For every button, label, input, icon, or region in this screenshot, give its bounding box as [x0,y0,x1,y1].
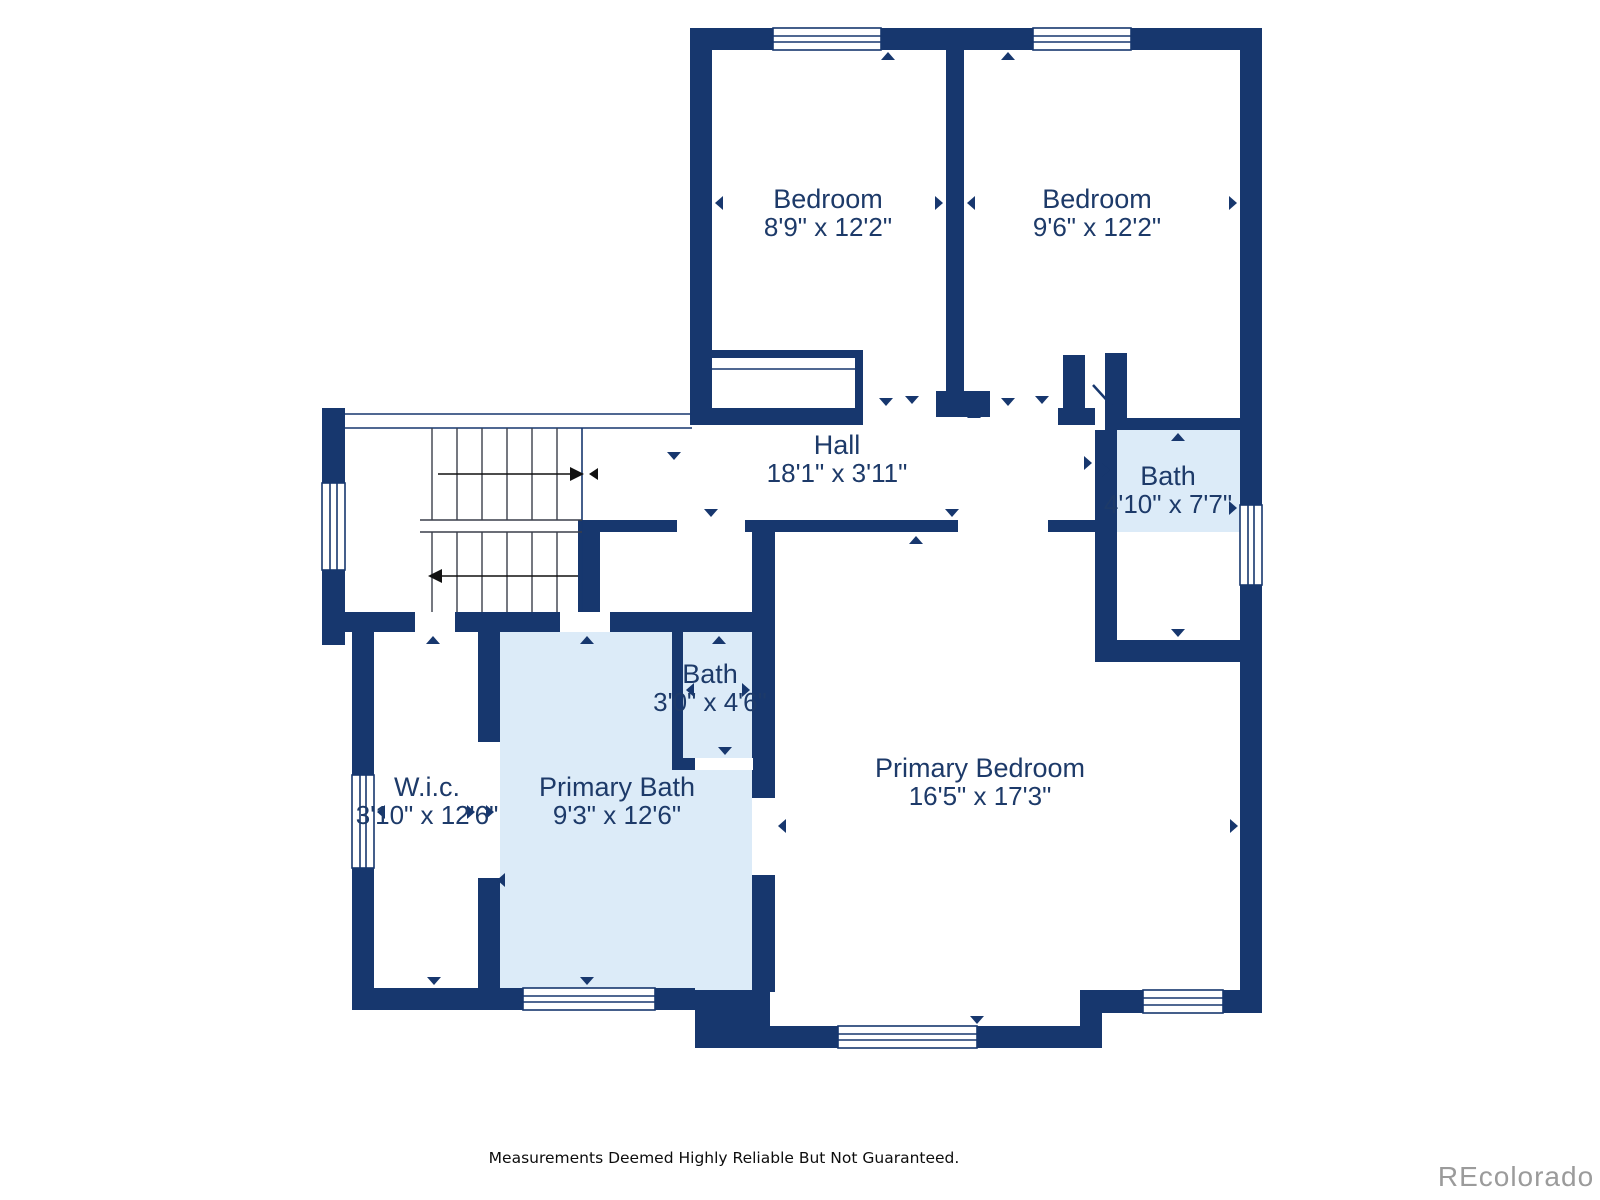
disclaimer-text: Measurements Deemed Highly Reliable But … [489,1149,960,1167]
window [838,1026,977,1048]
room-dims: 3'0" x 4'6" [653,687,767,717]
room-label-bedroom-right: Bedroom 9'6" x 12'2" [1033,184,1161,242]
window [523,988,655,1010]
floor-plan: Bedroom 8'9" x 12'2" Bedroom 9'6" x 12'2… [0,0,1600,1200]
room-label-bedroom-left: Bedroom 8'9" x 12'2" [764,184,892,242]
room-name: Bath [1140,461,1196,491]
floor-plan-page: Bedroom 8'9" x 12'2" Bedroom 9'6" x 12'2… [0,0,1600,1200]
room-dims: 9'3" x 12'6" [553,800,681,830]
window [773,28,881,50]
window [1240,505,1262,585]
room-dims: 9'6" x 12'2" [1033,212,1161,242]
room-name: Primary Bedroom [875,753,1085,783]
room-dims: 8'9" x 12'2" [764,212,892,242]
room-name: Bath [682,659,738,689]
room-label-primary-bath: Primary Bath 9'3" x 12'6" [539,772,695,830]
window [1143,990,1223,1013]
window [1033,28,1131,50]
room-name: Bedroom [1042,184,1152,214]
room-dims: 4'10" x 7'7" [1104,489,1232,519]
room-name: Primary Bath [539,772,695,802]
room-name: Bedroom [773,184,883,214]
room-dims: 18'1" x 3'11" [767,458,908,488]
room-dims: 16'5" x 17'3" [909,781,1052,811]
room-dims: 3'10" x 12'6" [356,800,499,830]
room-name: Hall [814,430,861,460]
watermark: REcolorado [1438,1161,1594,1192]
room-name: W.i.c. [394,772,460,802]
window [322,483,345,570]
